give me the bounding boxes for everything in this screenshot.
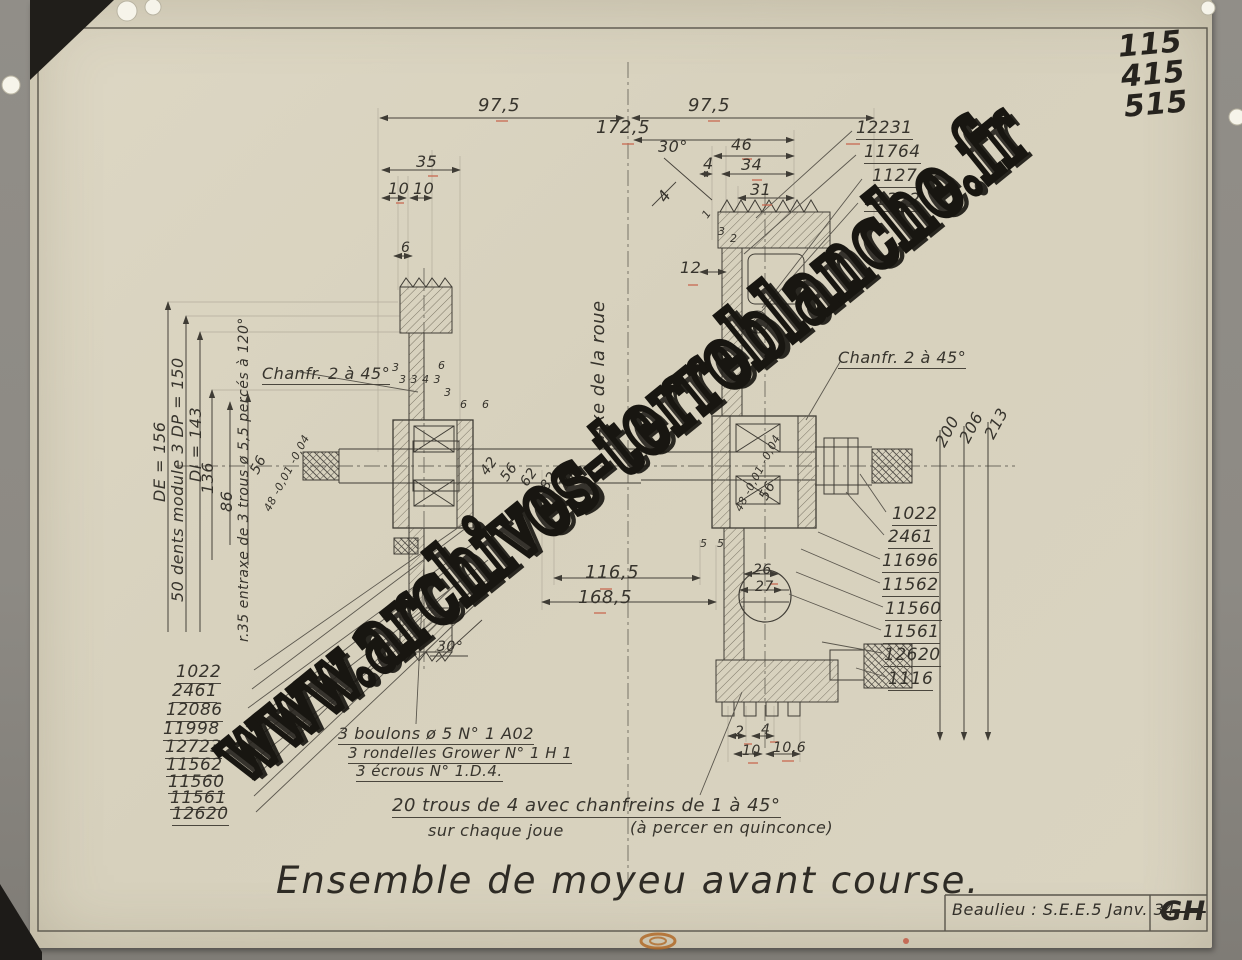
part-number: 11322	[864, 192, 921, 212]
red-dot	[903, 938, 909, 944]
punch-hole	[145, 0, 161, 15]
dim-6-small-a: 6	[438, 360, 446, 371]
dim-3-small-b: 3	[444, 387, 452, 398]
paperclip-mark	[650, 938, 666, 945]
dim-116-5: 116,5	[585, 564, 639, 582]
part-number: 1127	[872, 168, 917, 188]
holes-note-line3: (à percer en quinconce)	[630, 820, 833, 836]
corner-number-3: 515	[1123, 87, 1189, 122]
part-number: 12620	[884, 647, 941, 667]
punch-hole	[1229, 109, 1242, 125]
dim-4c: 4	[761, 723, 770, 737]
dim-31: 31	[750, 182, 771, 198]
angle-30-top: 30°	[658, 139, 688, 155]
chamfer-note-left: Chanfr. 2 à 45°	[262, 366, 390, 385]
part-number: 11764	[864, 144, 921, 164]
entraxe-note: r.35 entraxe de 3 trous ø 5,5 percés à 1…	[237, 317, 251, 642]
holes-note-line2: sur chaque joue	[428, 823, 564, 839]
part-number: 11562	[882, 577, 939, 597]
dim-46: 46	[731, 137, 752, 153]
dim-5a: 5	[700, 538, 708, 549]
punch-hole	[2, 76, 20, 94]
angle-30-bottom: 30°	[437, 640, 463, 654]
dim-172-5: 172,5	[596, 119, 650, 137]
dim-6-small-b: 6	[460, 399, 468, 410]
gear-de-label: DE = 156	[152, 421, 168, 502]
dim-4a: 4	[703, 156, 714, 172]
credit-text: Beaulieu : S.E.E.5 Janv. 34	[952, 902, 1175, 918]
part-number: 12231	[856, 120, 913, 140]
torn-corner-top-left	[30, 0, 114, 80]
dim-3a: 3	[718, 226, 726, 237]
part-number: 11561	[883, 624, 940, 644]
angle-rays	[430, 158, 712, 662]
scanned-drawing-sheet: 115 415 515 97,5 97,5 172,5 35 10 10 6 3…	[0, 0, 1242, 960]
dim-2b: 2	[735, 725, 744, 739]
dim-12: 12	[680, 260, 701, 276]
bolts-note-line1: 3 boulons ø 5 N° 1 A02	[338, 726, 534, 745]
dim-168-5: 168,5	[578, 589, 632, 607]
bolts-note-line3: 3 écrous N° 1.D.4.	[356, 764, 503, 782]
dim-10b: 10	[413, 181, 434, 197]
holes-note-line1: 20 trous de 4 avec chanfreins de 1 à 45°	[392, 797, 781, 818]
torn-corner-bottom-left	[0, 884, 42, 960]
wheel-section	[712, 200, 912, 716]
part-number: 12620	[172, 806, 229, 826]
dim-5b: 5	[717, 538, 725, 549]
left-gear-section	[393, 278, 473, 661]
dim-6: 6	[401, 241, 410, 255]
dim-2a: 2	[730, 233, 738, 244]
part-number: 11696	[882, 553, 939, 573]
radius-136-label: 136	[200, 462, 216, 494]
drawing-title: Ensemble de moyeu avant course.	[276, 862, 980, 899]
dim-10a: 10	[388, 181, 409, 197]
dim-10-6: 10,6	[773, 741, 806, 755]
chamfer-note-right: Chanfr. 2 à 45°	[838, 350, 966, 369]
part-number: 11560	[885, 601, 942, 621]
gear-teeth-label: 50 dents module 3 DP = 150	[170, 357, 186, 602]
radius-86-label: 86	[219, 491, 235, 512]
part-number: 2461	[888, 529, 933, 549]
dim-3-small: 3	[392, 362, 400, 373]
wheel-axis-label: Axe de la roue	[590, 300, 608, 438]
dim-97-5-left: 97,5	[478, 97, 520, 115]
dim-27: 27	[755, 580, 774, 594]
dim-35: 35	[416, 154, 437, 170]
dim-10c: 10	[742, 744, 761, 758]
punch-hole	[1201, 1, 1215, 15]
dim-3343: 3 3 4 3	[399, 374, 441, 385]
signature-monogram: GH	[1160, 898, 1206, 925]
part-number: 1022	[892, 506, 937, 526]
part-number: 1116	[888, 671, 933, 691]
dim-97-5-right: 97,5	[688, 97, 730, 115]
dim-34: 34	[741, 157, 762, 173]
paperclip-mark	[641, 934, 675, 948]
dim-26: 26	[753, 563, 772, 577]
dim-6-small-c: 6	[482, 399, 490, 410]
punch-hole	[117, 1, 137, 21]
